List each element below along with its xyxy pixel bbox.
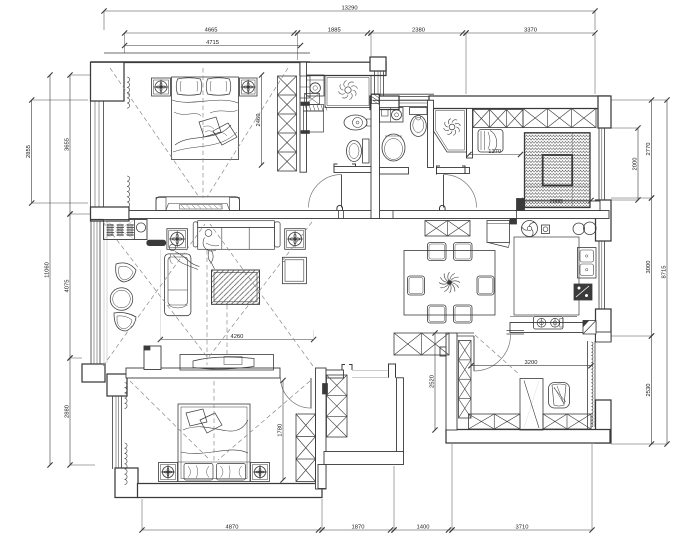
svg-text:2000: 2000 (550, 198, 563, 205)
svg-text:4870: 4870 (226, 523, 239, 530)
svg-text:1870: 1870 (352, 523, 365, 530)
svg-text:2880: 2880 (63, 405, 70, 418)
svg-text:4715: 4715 (206, 40, 219, 46)
svg-text:2380: 2380 (412, 26, 425, 33)
svg-text:2520: 2520 (428, 375, 435, 388)
svg-text:8715: 8715 (660, 266, 667, 279)
svg-text:3200: 3200 (525, 359, 538, 366)
svg-text:4665: 4665 (205, 26, 218, 33)
svg-text:11060: 11060 (43, 262, 50, 278)
svg-text:3370: 3370 (524, 26, 537, 33)
svg-text:1400: 1400 (417, 523, 430, 530)
svg-text:13290: 13290 (341, 4, 357, 11)
svg-text:2770: 2770 (645, 143, 652, 156)
svg-text:2855: 2855 (25, 145, 32, 158)
svg-text:1780: 1780 (276, 424, 283, 437)
svg-text:4075: 4075 (63, 280, 70, 293)
svg-text:3000: 3000 (645, 261, 652, 274)
svg-text:2530: 2530 (645, 384, 652, 397)
svg-text:3710: 3710 (516, 523, 529, 530)
svg-text:4260: 4260 (230, 333, 243, 340)
svg-text:1370: 1370 (488, 148, 501, 155)
svg-text:3655: 3655 (63, 138, 70, 151)
svg-text:1885: 1885 (328, 26, 341, 33)
svg-text:2000: 2000 (631, 158, 638, 171)
